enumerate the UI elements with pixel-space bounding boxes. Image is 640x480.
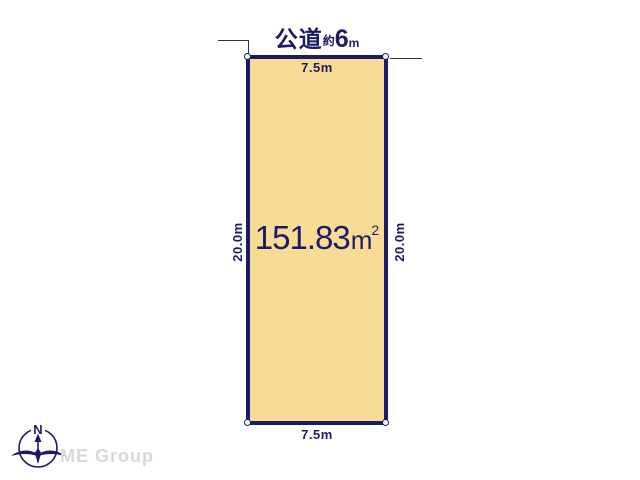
vertex-marker-top-right [382, 53, 389, 60]
vertex-marker-top-left [244, 53, 251, 60]
company-watermark: ME Group [60, 446, 154, 467]
road-approx: 約 [323, 34, 335, 48]
vertex-marker-bottom-right [382, 419, 389, 426]
dimension-top: 7.5m [246, 60, 388, 75]
extension-line-top-right [390, 58, 422, 59]
area-unit: m [351, 225, 373, 255]
area-label: 151.83m2 [236, 219, 398, 257]
road-width-unit: m [349, 36, 360, 50]
north-compass-icon: N [8, 419, 66, 473]
road-label: 公道約6m [236, 20, 398, 54]
road-name: 公道 [275, 26, 323, 52]
area-exponent: 2 [371, 222, 379, 238]
road-width-value: 6 [335, 25, 349, 53]
vertex-marker-bottom-left [244, 419, 251, 426]
dimension-bottom: 7.5m [246, 427, 388, 442]
land-plot-diagram: 公道約6m 7.5m 7.5m 20.0m 20.0m 151.83m2 N M… [0, 0, 640, 480]
area-value: 151.83 [255, 219, 350, 256]
